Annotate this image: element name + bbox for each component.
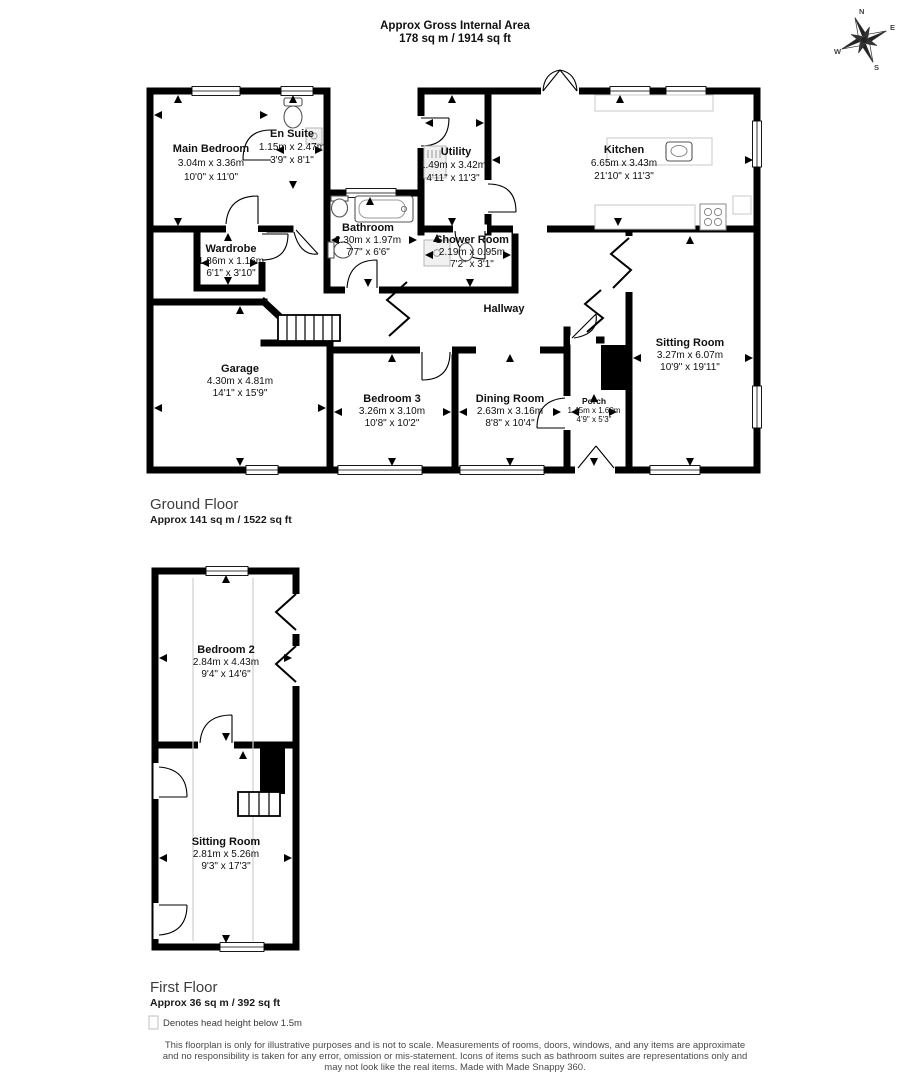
room-dim-metric-sitting-room: 3.27m x 6.07m	[657, 350, 723, 361]
room-label-garage: Garage	[221, 363, 259, 375]
compass-s-label: S	[874, 63, 879, 72]
ground-floor-area: Approx 141 sq m / 1522 sq ft	[150, 514, 292, 526]
room-dim-imperial-shower-room: 7'2" x 3'1"	[450, 259, 494, 270]
room-label-first-sitting-room: Sitting Room	[192, 836, 261, 848]
room-dim-imperial-sitting-room: 10'9" x 19'11"	[660, 362, 720, 373]
room-dim-metric-utility: 1.49m x 3.42m	[420, 160, 486, 171]
compass-n-label: N	[859, 7, 864, 16]
first-stairs	[238, 792, 280, 816]
room-dim-metric-dining-room: 2.63m x 3.16m	[477, 406, 543, 417]
room-dim-metric-bedroom-3: 3.26m x 3.10m	[359, 406, 425, 417]
room-dim-metric-wardrobe: 1.86m x 1.16m	[198, 256, 264, 267]
room-dim-metric-kitchen: 6.65m x 3.43m	[591, 158, 657, 169]
first-floor-title: First Floor	[150, 979, 218, 996]
room-label-shower-room: Shower Room	[435, 234, 509, 246]
room-dim-metric-bathroom: 2.30m x 1.97m	[335, 235, 401, 246]
room-label-porch: Porch	[582, 396, 606, 406]
ground-floor-title: Ground Floor	[150, 496, 238, 513]
first-floor-area: Approx 36 sq m / 392 sq ft	[150, 997, 281, 1009]
room-label-kitchen: Kitchen	[604, 144, 645, 156]
chimney-breast	[601, 345, 629, 390]
disclaimer-line-2: and no responsibility is taken for any e…	[163, 1051, 748, 1062]
room-dim-imperial-wardrobe: 6'1" x 3'10"	[206, 268, 256, 279]
room-label-hallway: Hallway	[484, 303, 526, 315]
compass-e-label: E	[890, 23, 895, 32]
room-label-utility: Utility	[441, 146, 472, 158]
room-dim-metric-bedroom-2: 2.84m x 4.43m	[193, 657, 259, 668]
room-dim-imperial-porch: 4'9" x 5'3"	[577, 415, 612, 424]
disclaimer-line-3: may not look like the real items. Made w…	[324, 1062, 585, 1073]
room-dim-imperial-en-suite: 3'9" x 8'1"	[270, 155, 314, 166]
room-label-wardrobe: Wardrobe	[206, 243, 257, 255]
first-windows	[206, 567, 264, 952]
gross-area-title: Approx Gross Internal Area	[380, 20, 530, 32]
room-dim-imperial-garage: 14'1" x 15'9"	[213, 388, 268, 399]
room-dim-imperial-kitchen: 21'10" x 11'3"	[594, 171, 654, 182]
legend-text: Denotes head height below 1.5m	[163, 1018, 302, 1029]
compass-w-label: W	[834, 47, 842, 56]
floorplan-canvas: Approx Gross Internal Area 178 sq m / 19…	[0, 0, 906, 1080]
room-dim-metric-en-suite: 1.15m x 2.47m	[259, 142, 325, 153]
ground-stairs	[278, 315, 340, 341]
room-dim-metric-garage: 4.30m x 4.81m	[207, 376, 273, 387]
disclaimer-line-1: This floorplan is only for illustrative …	[165, 1040, 745, 1051]
room-dim-imperial-bathroom: 7'7" x 6'6"	[346, 247, 390, 258]
head-height-swatch-icon	[149, 1016, 158, 1029]
room-label-bedroom-2: Bedroom 2	[197, 644, 254, 656]
room-dim-imperial-utility: 4'11" x 11'3"	[426, 173, 480, 184]
head-height-lines	[193, 578, 253, 941]
room-label-dining-room: Dining Room	[476, 393, 545, 405]
kitchen-hob-icon	[700, 204, 726, 230]
room-dim-metric-shower-room: 2.19m x 0.95m	[439, 247, 505, 258]
gross-area-value: 178 sq m / 1914 sq ft	[399, 33, 511, 45]
floorplan-page: Approx Gross Internal Area 178 sq m / 19…	[0, 0, 906, 1080]
kitchen-sink-icon	[666, 142, 692, 161]
first-floor-plan: Bedroom 2 2.84m x 4.43m 9'4" x 14'6" Sit…	[150, 567, 301, 1010]
room-label-bedroom-3: Bedroom 3	[363, 393, 420, 405]
room-label-bathroom: Bathroom	[342, 222, 394, 234]
room-dim-metric-first-sitting-room: 2.81m x 5.26m	[193, 849, 259, 860]
room-label-en-suite: En Suite	[270, 128, 314, 140]
bathroom-sink-icon	[331, 196, 348, 217]
room-dim-metric-porch: 1.45m x 1.60m	[568, 406, 621, 415]
disclaimer: This floorplan is only for illustrative …	[163, 1040, 748, 1073]
ground-floor-plan: Main Bedroom 3.04m x 3.36m 10'0" x 11'0"…	[150, 70, 762, 526]
compass-rose-icon: N E S W	[833, 7, 895, 72]
room-label-main-bedroom: Main Bedroom	[173, 143, 250, 155]
legend: Denotes head height below 1.5m	[149, 1016, 302, 1029]
bathroom-bath-icon	[355, 196, 413, 222]
first-floor-void-block	[260, 748, 285, 794]
room-dim-metric-main-bedroom: 3.04m x 3.36m	[178, 158, 244, 169]
room-dim-imperial-dining-room: 8'8" x 10'4"	[485, 418, 535, 429]
room-dim-imperial-main-bedroom: 10'0" x 11'0"	[184, 172, 239, 183]
room-dim-imperial-bedroom-2: 9'4" x 14'6"	[201, 669, 251, 680]
room-dim-imperial-bedroom-3: 10'8" x 10'2"	[365, 418, 420, 429]
room-dim-imperial-first-sitting-room: 9'3" x 17'3"	[201, 861, 251, 872]
room-label-sitting-room: Sitting Room	[656, 337, 725, 349]
